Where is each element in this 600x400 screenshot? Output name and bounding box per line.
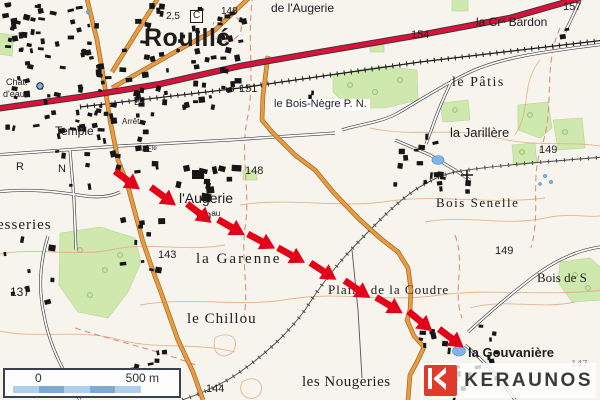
keraunos-logo: KERAUNOS (421, 363, 596, 398)
tornado-track-layer (0, 0, 600, 400)
track-arrow (274, 240, 310, 270)
keraunos-logo-icon (424, 365, 457, 396)
scale-strip (13, 386, 141, 393)
topographic-map: Rouillé2,5C148de l'Augerie157154la Crˣ B… (0, 0, 600, 400)
track-arrow (146, 180, 181, 212)
scale-segment (115, 386, 141, 393)
scale-start-label: 0 (35, 371, 42, 385)
keraunos-logo-text: KERAUNOS (464, 370, 593, 392)
track-arrow (306, 255, 342, 287)
map-scale-bar: 0 500 m (3, 368, 181, 398)
track-arrow (372, 290, 408, 321)
scale-segment (64, 386, 90, 393)
track-arrow (340, 273, 376, 305)
scale-segment (39, 386, 65, 393)
scale-segment (90, 386, 116, 393)
track-arrow (403, 305, 438, 338)
track-arrow (110, 164, 145, 196)
track-arrow (244, 226, 280, 256)
track-arrow (434, 322, 469, 355)
scale-end-label: 500 m (126, 371, 159, 385)
track-arrow (182, 197, 217, 230)
scale-segment (13, 386, 39, 393)
track-arrow (214, 212, 250, 243)
